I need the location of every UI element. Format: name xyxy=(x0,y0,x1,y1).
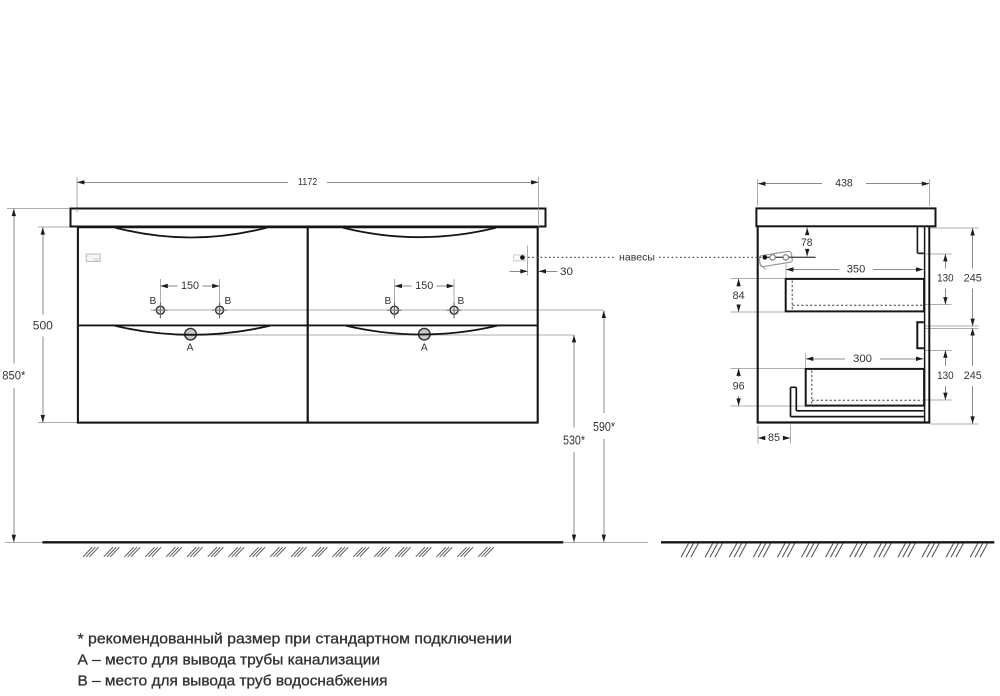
svg-text:В: В xyxy=(150,296,157,307)
svg-text:84: 84 xyxy=(733,290,745,302)
svg-text:А: А xyxy=(421,342,428,353)
svg-text:530*: 530* xyxy=(563,433,585,448)
svg-text:А – место для вывода трубы кан: А – место для вывода трубы канализации xyxy=(78,653,381,669)
svg-text:130: 130 xyxy=(937,273,954,285)
svg-text:150: 150 xyxy=(415,280,433,292)
svg-text:1172: 1172 xyxy=(298,177,318,188)
svg-text:245: 245 xyxy=(964,370,982,382)
svg-text:В: В xyxy=(385,296,392,307)
svg-text:150: 150 xyxy=(181,280,199,292)
svg-text:А: А xyxy=(187,342,194,353)
svg-text:85: 85 xyxy=(768,432,780,444)
svg-text:590*: 590* xyxy=(593,419,615,434)
svg-text:130: 130 xyxy=(937,370,954,382)
svg-text:500: 500 xyxy=(33,319,53,333)
svg-text:300: 300 xyxy=(853,353,872,365)
svg-text:96: 96 xyxy=(733,381,745,393)
svg-text:78: 78 xyxy=(801,237,813,249)
svg-text:438: 438 xyxy=(835,178,853,190)
svg-text:350: 350 xyxy=(847,263,866,275)
svg-text:30: 30 xyxy=(560,266,573,278)
svg-text:В: В xyxy=(225,296,232,307)
svg-text:В: В xyxy=(458,296,465,307)
svg-text:* рекомендованный размер при с: * рекомендованный размер при стандартном… xyxy=(78,632,513,648)
svg-text:В – место для вывода труб водо: В – место для вывода труб водоснабжения xyxy=(78,674,388,690)
svg-text:навесы: навесы xyxy=(619,252,655,263)
svg-text:245: 245 xyxy=(964,273,982,285)
svg-text:850*: 850* xyxy=(2,369,25,383)
